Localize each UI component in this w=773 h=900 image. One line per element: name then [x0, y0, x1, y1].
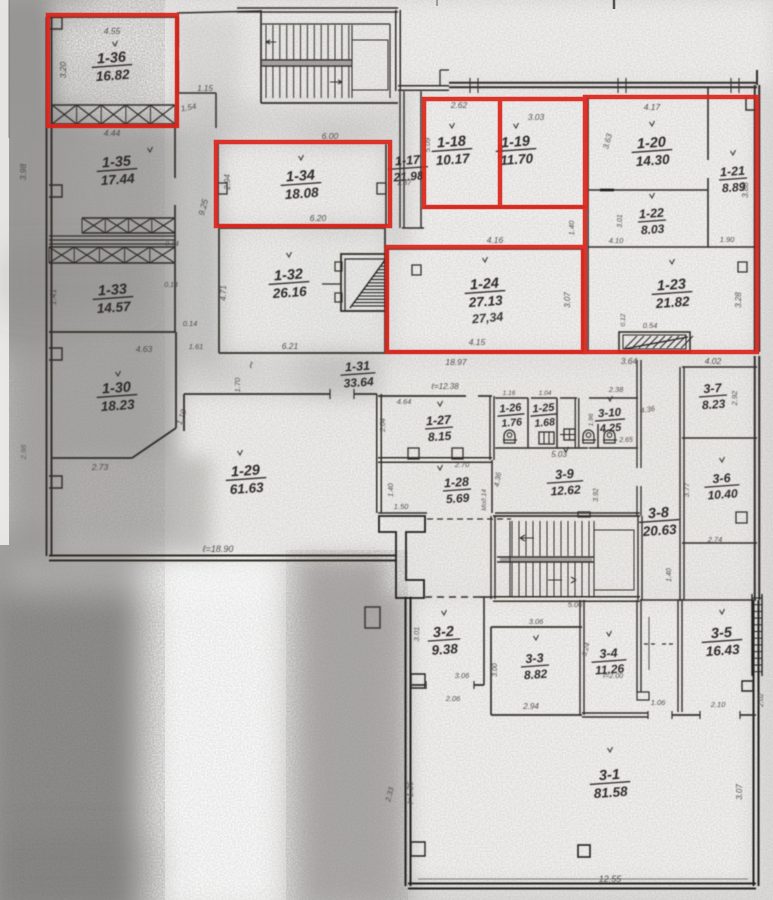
svg-text:18.08: 18.08 [284, 185, 319, 202]
svg-text:4.63: 4.63 [136, 344, 153, 354]
svg-text:26.16: 26.16 [271, 284, 307, 301]
svg-text:4.64: 4.64 [397, 397, 412, 406]
svg-text:33.64: 33.64 [343, 374, 374, 390]
svg-text:3.20: 3.20 [58, 61, 68, 78]
svg-text:4.02: 4.02 [705, 356, 722, 366]
svg-text:61.63: 61.63 [229, 480, 264, 497]
svg-text:1.96: 1.96 [588, 413, 595, 426]
svg-text:6.21: 6.21 [282, 341, 299, 351]
svg-text:4.16: 4.16 [487, 235, 504, 245]
svg-text:2.70: 2.70 [454, 460, 470, 469]
svg-text:6.20: 6.20 [310, 213, 327, 223]
svg-text:0.14: 0.14 [165, 241, 179, 248]
svg-text:1.61: 1.61 [189, 342, 204, 351]
svg-text:18.97: 18.97 [445, 357, 467, 367]
svg-text:20.63: 20.63 [641, 522, 677, 539]
svg-text:3-2: 3-2 [432, 624, 454, 641]
svg-text:ℓ=18.90: ℓ=18.90 [202, 544, 234, 554]
svg-text:1.41: 1.41 [48, 288, 58, 305]
svg-text:1-26: 1-26 [499, 402, 523, 416]
svg-text:4.15: 4.15 [469, 337, 486, 347]
svg-text:3-10: 3-10 [598, 407, 622, 421]
svg-text:8.23: 8.23 [701, 397, 726, 413]
svg-text:ℓ=12.38: ℓ=12.38 [430, 382, 459, 391]
svg-text:1.70: 1.70 [233, 377, 242, 392]
svg-text:1-27: 1-27 [426, 413, 453, 429]
svg-text:4.44: 4.44 [104, 128, 121, 138]
svg-text:2.04: 2.04 [380, 418, 387, 433]
svg-text:2.94: 2.94 [223, 174, 232, 191]
svg-text:2.74: 2.74 [707, 535, 723, 544]
svg-text:ℓ=1.36: ℓ=1.36 [406, 781, 415, 805]
svg-text:8.89: 8.89 [721, 180, 746, 196]
svg-text:2.65: 2.65 [618, 437, 633, 444]
svg-text:3.98: 3.98 [18, 163, 28, 180]
svg-text:4.71: 4.71 [219, 285, 228, 301]
svg-text:8.15: 8.15 [427, 429, 452, 445]
svg-text:2.02: 2.02 [758, 693, 765, 708]
svg-text:3-5: 3-5 [710, 625, 733, 642]
svg-text:8.82: 8.82 [523, 667, 548, 683]
svg-text:2.92: 2.92 [730, 390, 739, 406]
svg-text:1-28: 1-28 [444, 475, 470, 491]
svg-text:3.00: 3.00 [492, 663, 499, 677]
svg-text:1-25: 1-25 [532, 402, 556, 416]
svg-text:2.10: 2.10 [710, 700, 726, 709]
svg-text:0.12: 0.12 [620, 313, 627, 326]
svg-text:1-21: 1-21 [720, 164, 746, 180]
svg-text:0.14: 0.14 [164, 282, 178, 289]
svg-text:2.98: 2.98 [19, 444, 28, 460]
svg-text:1.40: 1.40 [567, 220, 576, 235]
svg-text:3.77: 3.77 [682, 482, 691, 497]
svg-text:1-17: 1-17 [395, 153, 422, 169]
svg-text:6.00: 6.00 [322, 131, 339, 141]
svg-text:2.62: 2.62 [450, 100, 468, 110]
svg-text:11.70: 11.70 [500, 151, 534, 168]
svg-text:3.03: 3.03 [528, 112, 545, 122]
svg-text:0.14: 0.14 [183, 319, 198, 328]
svg-text:3.28: 3.28 [734, 292, 743, 308]
svg-text:3-7: 3-7 [703, 381, 723, 396]
svg-text:5.69: 5.69 [445, 491, 470, 507]
svg-text:1.90: 1.90 [720, 235, 735, 244]
svg-text:1-22: 1-22 [639, 206, 665, 222]
svg-text:2.94: 2.94 [522, 702, 539, 711]
svg-text:1-31: 1-31 [345, 359, 371, 375]
svg-text:1.15: 1.15 [197, 84, 213, 93]
svg-text:3-1: 3-1 [598, 767, 620, 784]
svg-text:1.16: 1.16 [503, 390, 516, 397]
svg-text:5.03: 5.03 [551, 450, 567, 459]
svg-text:9.38: 9.38 [431, 641, 459, 658]
svg-text:27,34: 27,34 [470, 310, 503, 327]
svg-text:18.23: 18.23 [100, 397, 135, 414]
svg-text:8.03: 8.03 [640, 222, 665, 238]
svg-text:3.01: 3.01 [617, 214, 624, 228]
svg-text:Мод.14: Мод.14 [480, 489, 488, 511]
svg-text:3.64: 3.64 [621, 356, 638, 366]
svg-text:3.06: 3.06 [455, 671, 470, 680]
svg-text:ℓ=2.00: ℓ=2.00 [602, 673, 623, 680]
svg-text:3-9: 3-9 [555, 466, 576, 482]
svg-text:10.40: 10.40 [707, 486, 738, 502]
svg-text:3-3: 3-3 [525, 651, 544, 666]
svg-text:21.82: 21.82 [654, 294, 690, 311]
svg-text:1.76: 1.76 [501, 416, 523, 430]
svg-text:4.55: 4.55 [104, 26, 121, 36]
svg-text:2.06: 2.06 [445, 694, 461, 703]
svg-text:1.04: 1.04 [539, 390, 552, 397]
svg-text:1.06: 1.06 [651, 698, 666, 707]
svg-text:2.38: 2.38 [608, 385, 624, 394]
svg-text:14.30: 14.30 [635, 152, 670, 169]
svg-text:2.73: 2.73 [91, 462, 109, 472]
svg-text:ℓ: ℓ [249, 360, 253, 370]
svg-text:17.44: 17.44 [100, 171, 135, 188]
svg-text:1.40: 1.40 [388, 483, 395, 497]
svg-text:12.62: 12.62 [550, 482, 581, 498]
svg-text:4.17: 4.17 [644, 102, 661, 112]
svg-text:16.43: 16.43 [705, 642, 740, 659]
svg-text:10.17: 10.17 [435, 151, 471, 168]
svg-text:3.07: 3.07 [735, 784, 744, 800]
svg-text:0.54: 0.54 [643, 321, 658, 330]
svg-text:3-8: 3-8 [647, 505, 670, 522]
svg-text:3.92: 3.92 [593, 488, 600, 502]
svg-text:14.57: 14.57 [96, 299, 132, 316]
svg-text:3.01: 3.01 [412, 627, 421, 642]
svg-text:1.87: 1.87 [397, 178, 412, 187]
svg-text:1.40: 1.40 [666, 568, 673, 582]
svg-text:16.82: 16.82 [95, 67, 130, 84]
svg-text:27.13: 27.13 [467, 293, 503, 310]
svg-text:1.50: 1.50 [394, 502, 409, 511]
svg-text:1.68: 1.68 [534, 416, 556, 430]
svg-text:3.06: 3.06 [529, 617, 544, 626]
svg-text:3-6: 3-6 [712, 471, 732, 486]
svg-text:81.58: 81.58 [593, 784, 628, 801]
svg-text:4.10: 4.10 [609, 236, 624, 245]
svg-text:5.06: 5.06 [568, 600, 583, 609]
svg-text:3-4: 3-4 [599, 646, 618, 661]
svg-text:3.07: 3.07 [563, 292, 572, 308]
